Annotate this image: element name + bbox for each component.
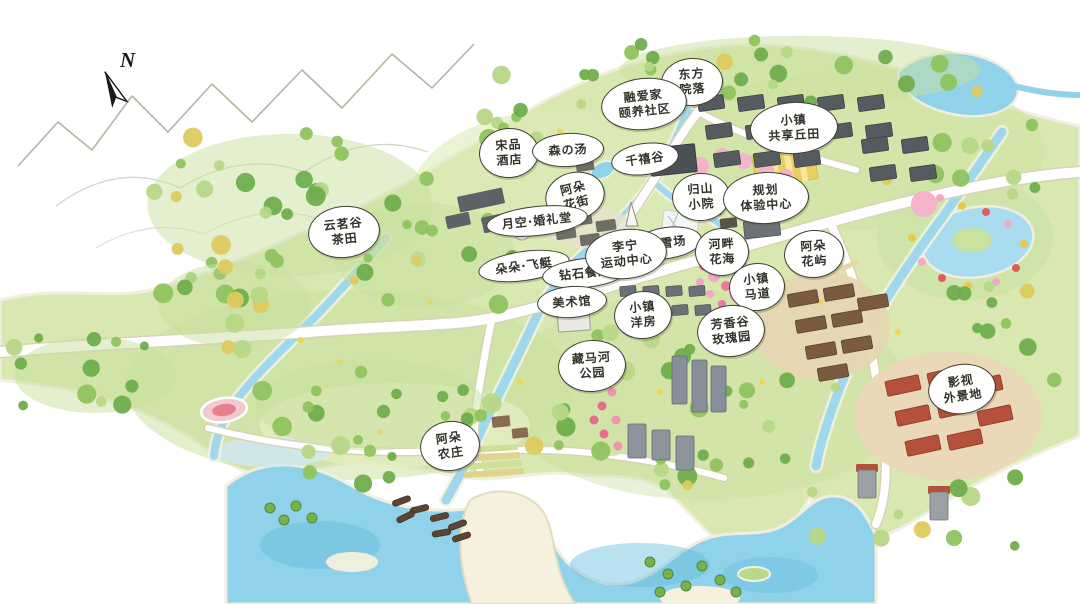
map-label-town-terrace-houses: 小镇洋房 [612,289,674,342]
map-label-qianxi-valley: 千禧谷 [609,138,681,179]
map-label-aduo-flower-isle: 阿朵花屿 [782,228,845,280]
map-label-text: 共享丘田 [768,127,821,145]
map-label-text: 农庄 [437,444,465,462]
map-label-text: 茶田 [331,231,358,249]
map-label-text: 千禧谷 [625,149,666,169]
map-label-text: 河畔 [708,236,735,252]
map-label-text: 小镇 [780,112,807,128]
map-label-text: 规划 [752,182,779,198]
map-label-planning-experience-center: 规划体验中心 [722,170,811,226]
map-label-art-museum: 美术馆 [536,284,608,321]
map-label-text: 森の汤 [548,141,588,158]
map-label-sen-no-yu-hot-spring: 森の汤 [531,131,605,169]
map-label-zangma-river-park: 藏马河公园 [556,338,627,395]
map-label-text: 玫瑰园 [712,329,752,348]
map-label-text: 藏马河 [571,350,611,368]
map-label-text: 酒店 [496,152,523,169]
map-label-text: 公园 [579,365,606,382]
map-label-text: 体验中心 [740,197,793,215]
map-label-text: 小院 [688,196,715,213]
map-label-text: 月空·婚礼堂 [501,210,573,232]
map-label-text: 美术馆 [552,293,592,311]
map-label-text: 洋房 [630,314,657,331]
map-label-songpin-hotel: 宋品酒店 [477,126,540,180]
map-label-town-shared-hill-fields: 小镇共享丘田 [749,100,840,157]
map-label-film-studio-location: 影视外景地 [925,360,999,419]
map-label-aduo-farm: 阿朵农庄 [417,417,483,475]
aduo-town-illustrated-map: N 东方院落融爱家颐养社区小镇共享丘田宋品酒店森の汤千禧谷阿朵花街归山小院规划体… [0,0,1080,604]
map-label-moon-sky-wedding-hall: 月空·婚礼堂 [485,201,590,241]
map-label-text: 马道 [744,286,771,303]
map-label-text: 花海 [709,251,736,267]
map-label-text: 运动中心 [600,251,653,271]
map-label-yunming-valley-tea-fields: 云茗谷茶田 [305,202,382,261]
map-labels-layer: 东方院落融爱家颐养社区小镇共享丘田宋品酒店森の汤千禧谷阿朵花街归山小院规划体验中… [0,0,1080,604]
map-label-text: 花屿 [801,253,828,270]
